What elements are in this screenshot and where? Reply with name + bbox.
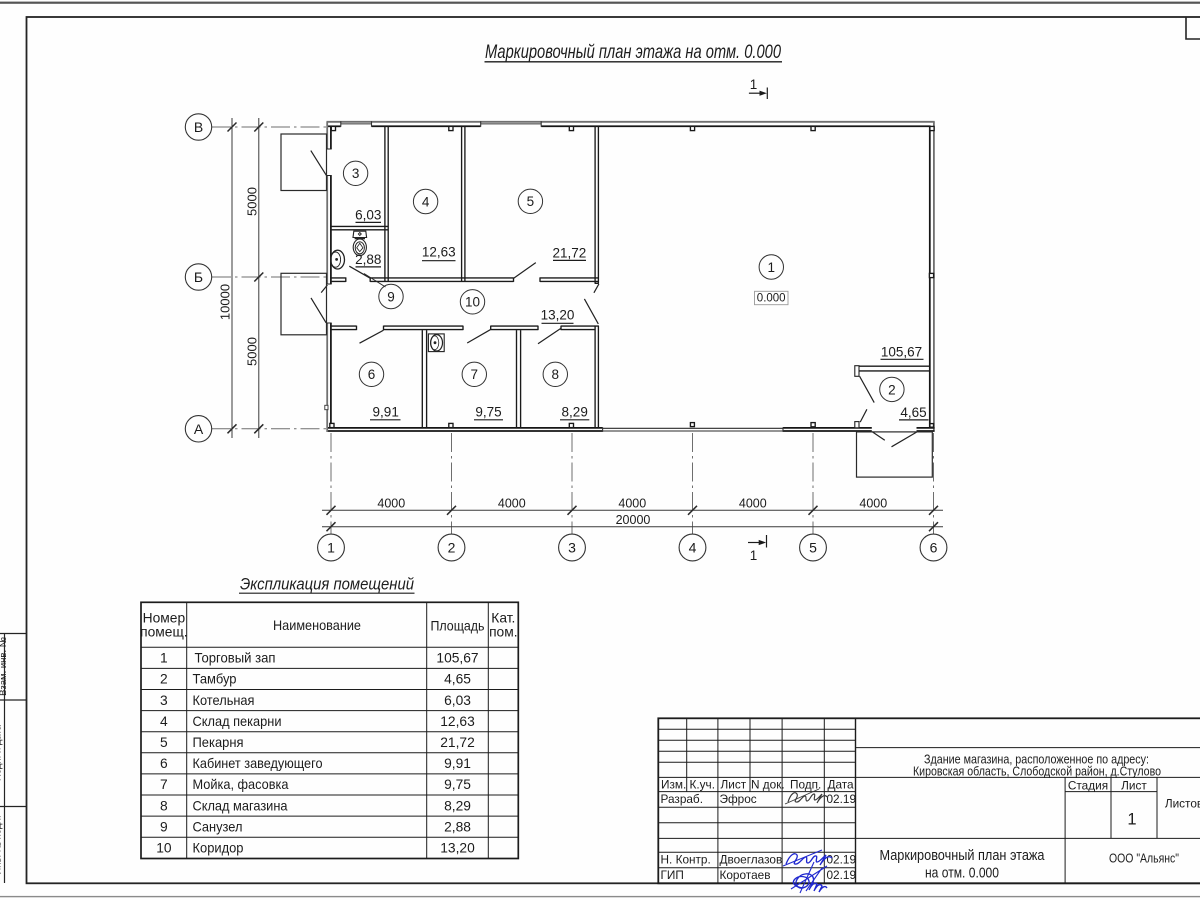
svg-text:Подп.: Подп.	[790, 777, 821, 791]
svg-text:Инв. № подл.: Инв. № подл.	[0, 815, 4, 874]
svg-text:Взам. инв. №: Взам. инв. №	[0, 637, 9, 696]
svg-text:13,20: 13,20	[541, 308, 575, 323]
svg-text:Коридор: Коридор	[193, 841, 244, 856]
svg-text:10: 10	[465, 295, 480, 310]
svg-text:Санузел: Санузел	[193, 819, 243, 834]
svg-text:1: 1	[160, 651, 168, 666]
svg-text:Листов: Листов	[1165, 797, 1200, 811]
svg-text:10: 10	[156, 841, 172, 856]
svg-text:02.19: 02.19	[827, 792, 857, 806]
svg-text:02.19: 02.19	[827, 853, 857, 867]
svg-text:Номер: Номер	[143, 611, 186, 626]
svg-text:Склад пекарни: Склад пекарни	[193, 714, 282, 729]
svg-text:3: 3	[160, 693, 168, 708]
svg-text:4000: 4000	[859, 497, 887, 511]
svg-text:Разраб.: Разраб.	[661, 792, 703, 806]
svg-text:2: 2	[448, 540, 456, 556]
svg-text:12,63: 12,63	[440, 714, 475, 729]
svg-text:Маркировочный план этажа: Маркировочный план этажа	[880, 847, 1046, 864]
svg-text:8: 8	[160, 798, 168, 813]
svg-text:1: 1	[750, 548, 758, 563]
svg-text:10000: 10000	[218, 284, 233, 320]
svg-text:1: 1	[750, 77, 758, 92]
svg-text:Лист: Лист	[721, 777, 747, 791]
svg-text:21,72: 21,72	[553, 245, 587, 260]
svg-text:9,75: 9,75	[444, 777, 471, 792]
svg-text:ООО "Альянс": ООО "Альянс"	[1109, 851, 1179, 866]
svg-text:6: 6	[930, 540, 938, 556]
svg-text:4000: 4000	[739, 497, 767, 511]
svg-text:13,20: 13,20	[440, 841, 475, 856]
svg-text:4000: 4000	[498, 497, 526, 511]
svg-text:Кабинет заведующего: Кабинет заведующего	[193, 756, 323, 771]
svg-text:9,75: 9,75	[475, 405, 501, 420]
svg-text:А: А	[194, 421, 204, 437]
svg-text:4: 4	[160, 714, 168, 729]
svg-text:Н. Контр.: Н. Контр.	[661, 853, 711, 867]
svg-text:Мойка, фасовка: Мойка, фасовка	[193, 777, 289, 792]
svg-text:Пекарня: Пекарня	[193, 735, 244, 750]
svg-text:7: 7	[160, 777, 168, 792]
svg-text:6: 6	[368, 367, 376, 382]
svg-text:9: 9	[387, 289, 395, 304]
svg-text:Тамбур: Тамбур	[193, 672, 237, 687]
svg-text:105,67: 105,67	[881, 344, 922, 359]
svg-text:5: 5	[527, 194, 535, 209]
svg-text:02.19: 02.19	[827, 868, 857, 882]
svg-text:5: 5	[160, 735, 168, 750]
svg-text:Изм.: Изм.	[661, 777, 686, 791]
svg-text:Экспликация помещений: Экспликация помещений	[240, 576, 414, 594]
svg-text:1: 1	[1127, 811, 1136, 829]
svg-text:9,91: 9,91	[373, 405, 399, 420]
svg-text:Кат.: Кат.	[491, 611, 515, 626]
svg-text:2: 2	[160, 672, 168, 687]
svg-text:Кировская область, Слободской: Кировская область, Слободской район, д.С…	[913, 764, 1161, 779]
svg-text:1: 1	[327, 540, 335, 556]
svg-text:6,03: 6,03	[444, 693, 471, 708]
svg-text:Лист: Лист	[1121, 778, 1147, 792]
svg-text:Б: Б	[194, 269, 203, 285]
svg-text:4,65: 4,65	[444, 672, 471, 687]
svg-text:N док.: N док.	[751, 777, 785, 791]
svg-text:5: 5	[809, 540, 817, 556]
svg-text:Площадь: Площадь	[431, 619, 485, 634]
svg-text:Склад магазина: Склад магазина	[193, 798, 288, 813]
svg-text:2,88: 2,88	[355, 252, 381, 267]
svg-text:пом.: пом.	[489, 625, 517, 640]
svg-text:К.уч.: К.уч.	[690, 777, 715, 791]
svg-text:2,88: 2,88	[444, 819, 471, 834]
svg-text:7: 7	[471, 367, 479, 382]
svg-text:21,72: 21,72	[440, 735, 475, 750]
svg-text:Двоеглазов: Двоеглазов	[720, 853, 783, 867]
svg-text:В: В	[194, 119, 203, 135]
svg-text:8: 8	[552, 367, 560, 382]
svg-text:Торговый зап: Торговый зап	[195, 651, 276, 666]
svg-text:9,91: 9,91	[444, 756, 471, 771]
svg-text:5000: 5000	[245, 187, 260, 216]
svg-text:помещ.: помещ.	[140, 625, 188, 640]
svg-text:0.000: 0.000	[757, 293, 786, 305]
svg-text:Наименование: Наименование	[273, 618, 361, 633]
svg-text:Эфрос: Эфрос	[720, 792, 757, 806]
svg-text:на отм. 0.000: на отм. 0.000	[925, 865, 999, 882]
svg-text:5000: 5000	[245, 337, 260, 366]
svg-text:9: 9	[160, 819, 168, 834]
svg-text:Котельная: Котельная	[193, 693, 255, 708]
svg-text:Стадия: Стадия	[1068, 778, 1108, 792]
svg-text:8,29: 8,29	[562, 405, 588, 420]
svg-text:6: 6	[160, 756, 168, 771]
svg-text:8,29: 8,29	[444, 798, 471, 813]
svg-text:1: 1	[768, 260, 776, 275]
svg-text:Коротаев: Коротаев	[720, 868, 771, 882]
svg-text:4,65: 4,65	[900, 405, 926, 420]
svg-text:6,03: 6,03	[355, 208, 381, 223]
svg-text:3: 3	[352, 166, 360, 181]
svg-text:4: 4	[422, 194, 430, 209]
svg-text:3: 3	[568, 540, 576, 556]
svg-text:4000: 4000	[377, 497, 405, 511]
svg-text:4000: 4000	[618, 497, 646, 511]
svg-text:Подп. и дата: Подп. и дата	[0, 724, 4, 781]
svg-text:Маркировочный план этажа на от: Маркировочный план этажа на отм. 0.000	[485, 41, 781, 63]
svg-text:4: 4	[689, 540, 697, 556]
svg-text:12,63: 12,63	[422, 245, 456, 260]
svg-text:105,67: 105,67	[436, 651, 478, 666]
svg-text:2: 2	[888, 382, 896, 397]
svg-text:20000: 20000	[616, 513, 651, 527]
svg-text:ГИП: ГИП	[661, 868, 684, 882]
svg-text:Дата: Дата	[828, 777, 855, 791]
